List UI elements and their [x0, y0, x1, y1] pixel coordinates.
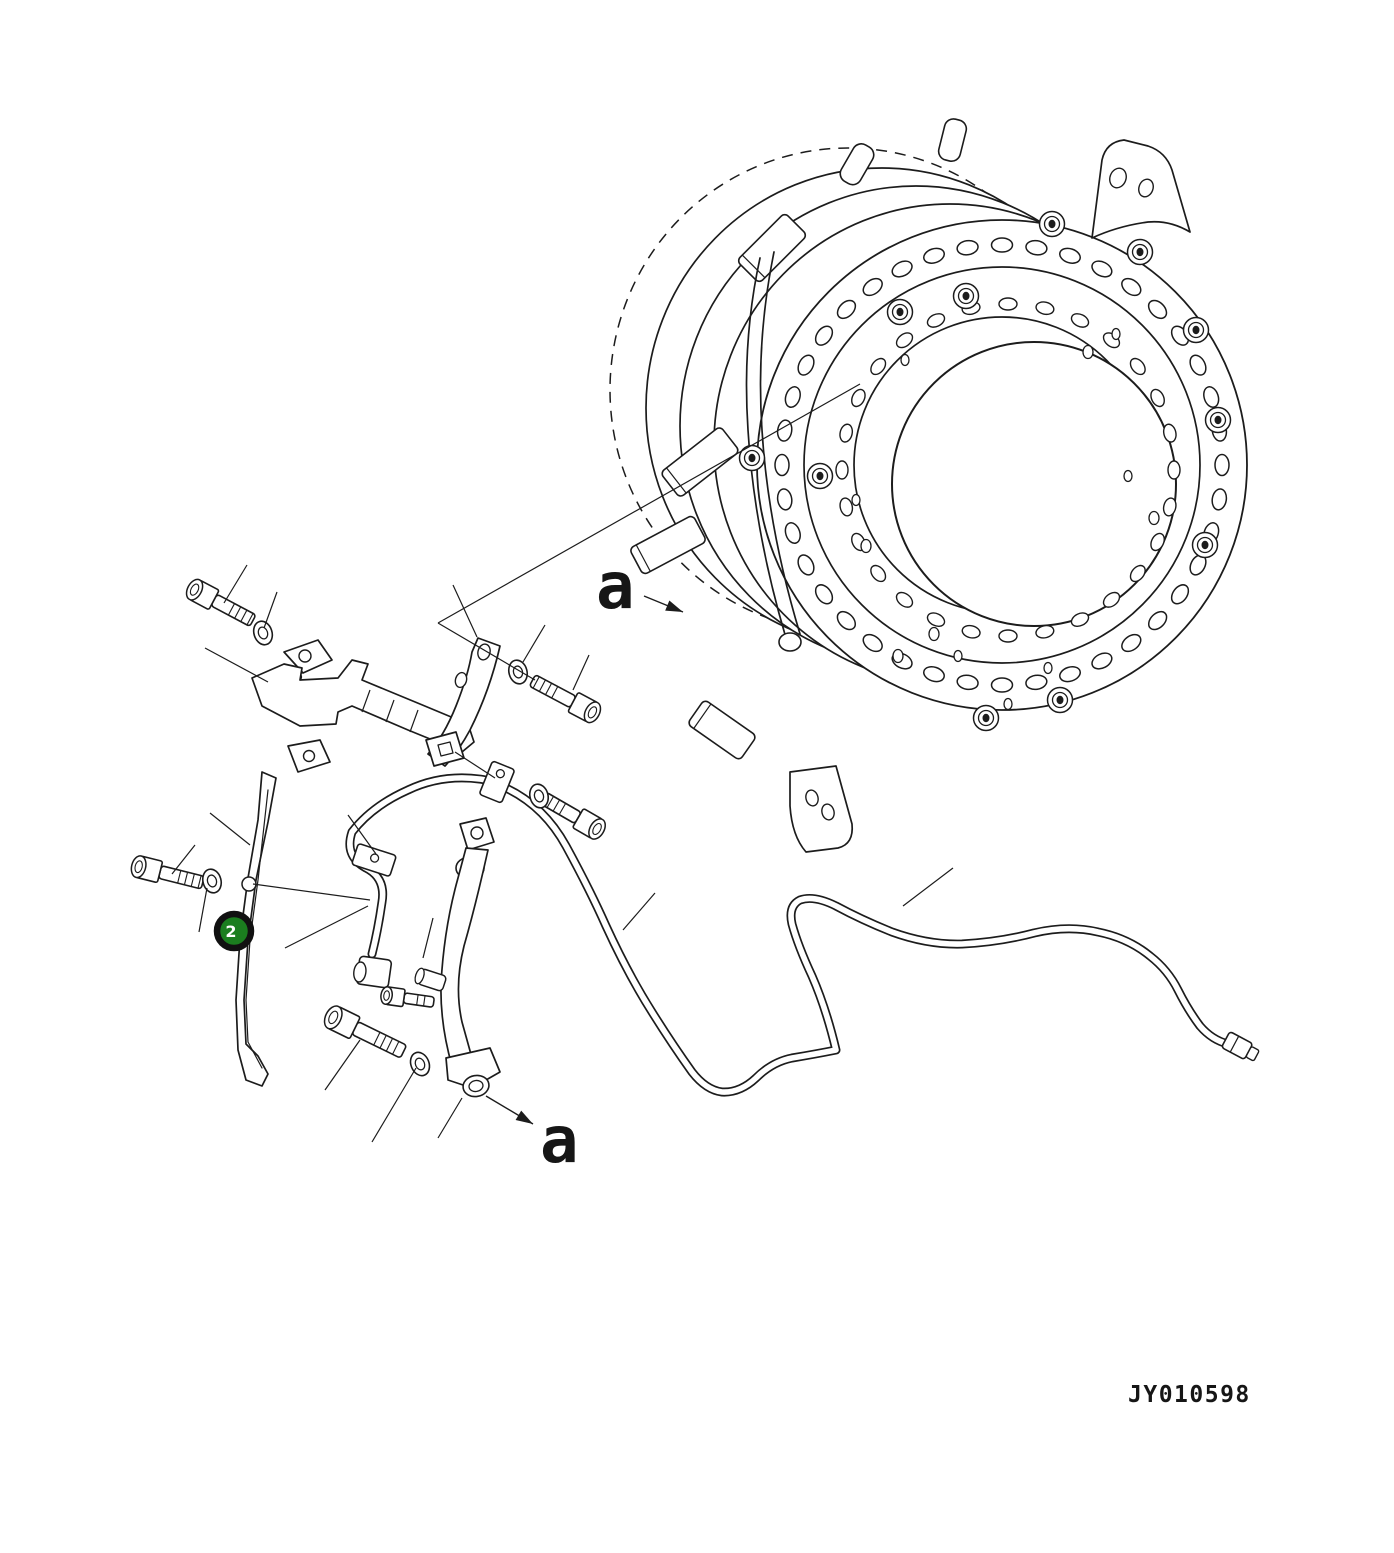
bolt-boss-center [1057, 696, 1064, 704]
face-small-hole [929, 628, 939, 641]
leader-line [210, 813, 250, 845]
hose-end-connector [1221, 1031, 1260, 1063]
arm-clamp-hole [438, 742, 453, 756]
washer [506, 658, 530, 686]
drum-lug [629, 515, 707, 575]
bolt-boss-center [1049, 220, 1056, 228]
sensor-tab-hole [471, 827, 483, 839]
bolt-shank [158, 866, 204, 889]
face-small-hole [1149, 512, 1159, 525]
leader-line [523, 625, 545, 662]
leader-line [623, 893, 655, 930]
flange-bolt-hole [775, 455, 789, 476]
bolt-shank [403, 993, 434, 1007]
flange-bolt-hole [992, 678, 1013, 692]
leader-line [573, 655, 589, 690]
face-small-hole [901, 355, 909, 366]
exploded-parts-diagram: a a 2 JY010598 [0, 0, 1394, 1553]
face-small-hole [852, 495, 860, 506]
leader-line [453, 585, 477, 637]
leader-line [224, 565, 247, 603]
face-small-hole [861, 540, 871, 553]
flange-bolt-hole [992, 238, 1013, 252]
drum-nub [937, 117, 969, 163]
brake-housing-assembly [610, 117, 1247, 852]
face-small-hole [893, 650, 903, 663]
part-callout-number: 2 [225, 922, 236, 941]
bolt-boss-center [749, 454, 756, 462]
center-opening [892, 342, 1176, 626]
bolt-boss-center [1215, 416, 1222, 424]
leader-line [172, 845, 195, 874]
hex-bolt [527, 671, 604, 726]
elbow-fitting [352, 955, 392, 988]
tube-clamp [352, 843, 397, 876]
drum-nub-body [937, 117, 969, 163]
hex-bolt [321, 1003, 409, 1062]
drum-lug [687, 699, 757, 760]
washer [407, 1050, 433, 1079]
bolt-boss-center [1137, 248, 1144, 256]
flange-bolt-hole [1215, 455, 1229, 476]
bolt-boss-center [1202, 541, 1209, 549]
leader-line [438, 1098, 462, 1138]
hex-bolt [183, 577, 258, 631]
washer [251, 619, 276, 647]
face-bolt-hole [999, 630, 1017, 642]
hose-clamp [479, 761, 515, 803]
strap-boss [779, 633, 801, 651]
clamp-body [479, 761, 515, 803]
face-small-hole [1004, 699, 1012, 710]
drawing-number: JY010598 [1128, 1382, 1251, 1408]
washer [200, 867, 224, 895]
bottom-tab [790, 766, 852, 852]
leader-line [372, 1068, 416, 1142]
bolt-boss-center [1193, 326, 1200, 334]
leader-line [325, 1040, 360, 1090]
face-small-hole [1083, 346, 1093, 359]
leader-line [205, 648, 268, 682]
face-bolt-hole [999, 298, 1017, 310]
leader-line [285, 906, 368, 948]
bolt-shank [352, 1022, 407, 1059]
plate-foot-hole [304, 751, 315, 762]
plate-tab-hole [299, 650, 311, 662]
bolt-boss-center [817, 472, 824, 480]
leader-line [253, 884, 370, 900]
section-arrowhead [516, 1111, 533, 1124]
hex-bolt [129, 854, 205, 893]
leader-line [903, 868, 953, 906]
drum-lug-body [629, 515, 707, 575]
bolt-boss-center [983, 714, 990, 722]
leader-line [423, 918, 433, 958]
face-small-hole [1112, 329, 1120, 340]
leader-line [264, 592, 277, 628]
section-label-a-upper: a [596, 550, 635, 624]
bolt-boss-center [963, 292, 970, 300]
section-label-a-lower: a [540, 1104, 579, 1178]
sensor-bracket-arm [441, 848, 488, 1066]
sensor-hose-inner [506, 788, 1228, 1092]
face-bolt-hole [1168, 461, 1180, 479]
face-small-hole [1124, 471, 1132, 482]
bolt-shank [529, 675, 576, 708]
hex-bolt [380, 986, 435, 1011]
parts-diagram-page: a a 2 JY010598 [0, 0, 1394, 1553]
drum-lug-body [687, 699, 757, 760]
section-arrow [644, 596, 683, 612]
part-callout-2[interactable]: 2 [217, 914, 251, 948]
leader-line [199, 888, 207, 932]
face-small-hole [954, 651, 962, 662]
section-arrow [486, 1096, 533, 1124]
bolt-boss-center [897, 308, 904, 316]
face-small-hole [1044, 663, 1052, 674]
face-bolt-hole [836, 461, 848, 479]
section-arrowhead [665, 600, 683, 612]
